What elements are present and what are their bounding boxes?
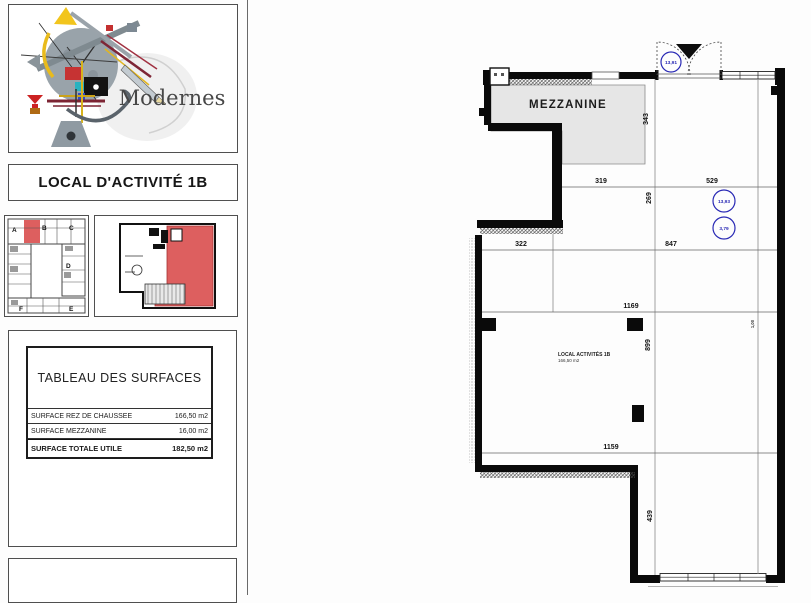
column-pillar: [632, 405, 644, 422]
dimension-269: 269: [646, 192, 653, 204]
level-door-value: 13,91: [665, 60, 677, 66]
top-opening: [592, 72, 619, 79]
dimension-899: 899: [645, 339, 652, 351]
dimension-100: 1,00: [750, 319, 755, 328]
column-pillars: [482, 318, 644, 422]
level-upper-value: 13,93: [718, 199, 730, 205]
dimension-343: 343: [643, 113, 650, 125]
floor-plan-drawing: MEZZANINE: [0, 0, 811, 595]
level-lower-value: 3,79: [719, 226, 729, 232]
bottom-window: [648, 574, 778, 587]
column-pillar: [482, 318, 496, 331]
mezzanine-label: MEZZANINE: [529, 99, 607, 111]
room-area: 166,50 m2: [558, 358, 580, 363]
column-pillar: [627, 318, 643, 331]
dimension-1169: 1169: [623, 303, 638, 310]
fixture-box: [490, 68, 509, 85]
dimension-322: 322: [515, 241, 527, 248]
dimension-529: 529: [706, 178, 718, 185]
level-badges: 13,91 13,93 3,79: [661, 52, 735, 239]
top-window: [722, 72, 775, 80]
dimension-847: 847: [665, 241, 677, 248]
dimension-319: 319: [595, 178, 607, 185]
entrance-door: [657, 42, 721, 78]
room-label: LOCAL ACTIVITÉS 1B: [558, 350, 611, 358]
dimension-439: 439: [647, 510, 654, 522]
plan-sheet: { "sidebar": { "brand": "Modernes", "tit…: [0, 0, 811, 595]
dimension-1159: 1159: [603, 444, 618, 451]
